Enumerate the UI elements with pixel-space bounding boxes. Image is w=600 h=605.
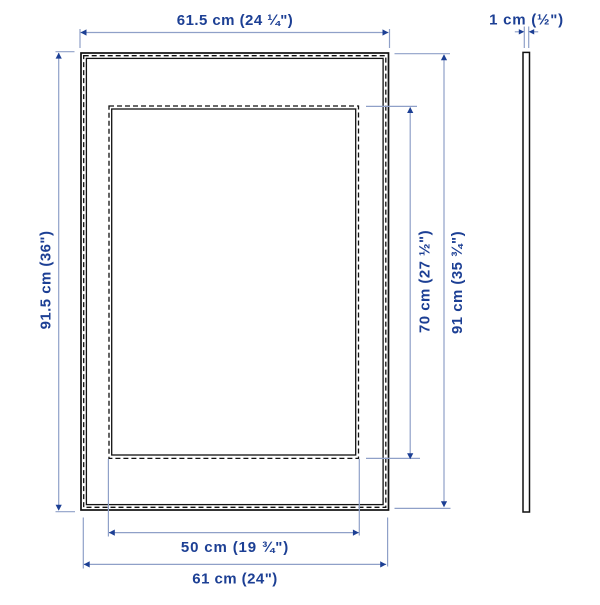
svg-text:50 cm (19 ¾"): 50 cm (19 ¾") xyxy=(181,539,289,556)
svg-text:70 cm (27 ½"): 70 cm (27 ½") xyxy=(417,230,434,333)
svg-text:61 cm (24"): 61 cm (24") xyxy=(192,570,277,587)
svg-text:91.5 cm (36"): 91.5 cm (36") xyxy=(37,231,54,330)
svg-text:91 cm (35 ¾"): 91 cm (35 ¾") xyxy=(449,231,466,334)
svg-text:61.5 cm (24 ¼"): 61.5 cm (24 ¼") xyxy=(177,12,293,29)
svg-text:1 cm (½"): 1 cm (½") xyxy=(489,12,564,29)
